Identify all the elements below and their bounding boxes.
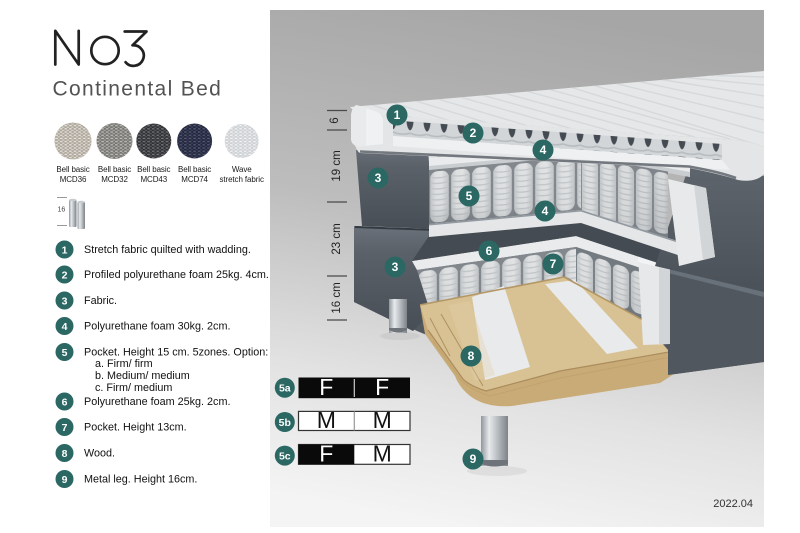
svg-text:c. Firm/ medium: c. Firm/ medium <box>95 382 172 394</box>
svg-text:2: 2 <box>62 269 68 281</box>
svg-text:Profiled polyurethane foam 25k: Profiled polyurethane foam 25kg. 4cm. <box>84 269 269 281</box>
svg-text:4: 4 <box>62 321 68 333</box>
svg-text:5a: 5a <box>279 383 291 395</box>
svg-text:M: M <box>317 407 336 433</box>
svg-text:16: 16 <box>58 207 66 214</box>
svg-text:F: F <box>319 374 333 400</box>
svg-text:Bell basic: Bell basic <box>178 165 211 174</box>
svg-text:4: 4 <box>540 143 547 157</box>
svg-text:7: 7 <box>550 257 557 271</box>
svg-text:MCD32: MCD32 <box>101 175 128 184</box>
svg-text:6: 6 <box>329 117 341 123</box>
svg-text:Bell basic: Bell basic <box>137 165 170 174</box>
svg-text:5: 5 <box>62 347 68 359</box>
svg-text:16 cm: 16 cm <box>331 282 343 313</box>
svg-text:3: 3 <box>375 171 382 185</box>
svg-text:3: 3 <box>392 260 399 274</box>
svg-text:Bell basic: Bell basic <box>56 165 89 174</box>
svg-text:Polyurethane foam 25kg. 2cm.: Polyurethane foam 25kg. 2cm. <box>84 396 230 408</box>
svg-text:9: 9 <box>62 474 68 486</box>
svg-text:MCD36: MCD36 <box>60 175 87 184</box>
svg-text:Continental Bed: Continental Bed <box>53 78 223 101</box>
svg-text:stretch fabric: stretch fabric <box>219 175 263 184</box>
svg-text:5: 5 <box>466 189 473 203</box>
svg-text:M: M <box>373 441 392 467</box>
svg-text:1: 1 <box>394 108 401 122</box>
svg-text:5c: 5c <box>279 450 291 462</box>
svg-text:1: 1 <box>62 244 68 256</box>
svg-text:3: 3 <box>62 295 68 307</box>
svg-text:Wave: Wave <box>232 165 252 174</box>
svg-text:Metal leg. Height 16cm.: Metal leg. Height 16cm. <box>84 474 197 486</box>
svg-text:MCD43: MCD43 <box>140 175 167 184</box>
svg-text:b. Medium/ medium: b. Medium/ medium <box>95 370 190 382</box>
svg-text:F: F <box>319 441 333 467</box>
svg-text:Bell basic: Bell basic <box>98 165 131 174</box>
svg-text:6: 6 <box>486 244 493 258</box>
svg-text:8: 8 <box>468 349 475 363</box>
svg-text:19 cm: 19 cm <box>331 150 343 181</box>
svg-text:M: M <box>373 407 392 433</box>
svg-text:Pocket. Height 15 cm. 5zones.: Pocket. Height 15 cm. 5zones. Option: <box>84 347 268 359</box>
svg-text:MCD74: MCD74 <box>181 175 208 184</box>
svg-text:23 cm: 23 cm <box>331 223 343 254</box>
svg-text:4: 4 <box>542 204 549 218</box>
svg-text:7: 7 <box>62 422 68 434</box>
svg-text:2: 2 <box>470 126 477 140</box>
svg-text:2022.04: 2022.04 <box>713 498 753 510</box>
svg-text:9: 9 <box>470 452 477 466</box>
svg-text:F: F <box>375 374 389 400</box>
svg-text:a. Firm/ firm: a. Firm/ firm <box>95 358 153 370</box>
svg-text:Wood.: Wood. <box>84 448 115 460</box>
svg-text:6: 6 <box>62 396 68 408</box>
svg-text:Stretch fabric quilted with wa: Stretch fabric quilted with wadding. <box>84 244 251 256</box>
svg-text:5b: 5b <box>279 417 291 429</box>
svg-text:Polyurethane foam 30kg. 2cm.: Polyurethane foam 30kg. 2cm. <box>84 321 230 333</box>
svg-text:Pocket. Height 13cm.: Pocket. Height 13cm. <box>84 422 187 434</box>
svg-text:Fabric.: Fabric. <box>84 295 117 307</box>
svg-text:8: 8 <box>62 448 68 460</box>
